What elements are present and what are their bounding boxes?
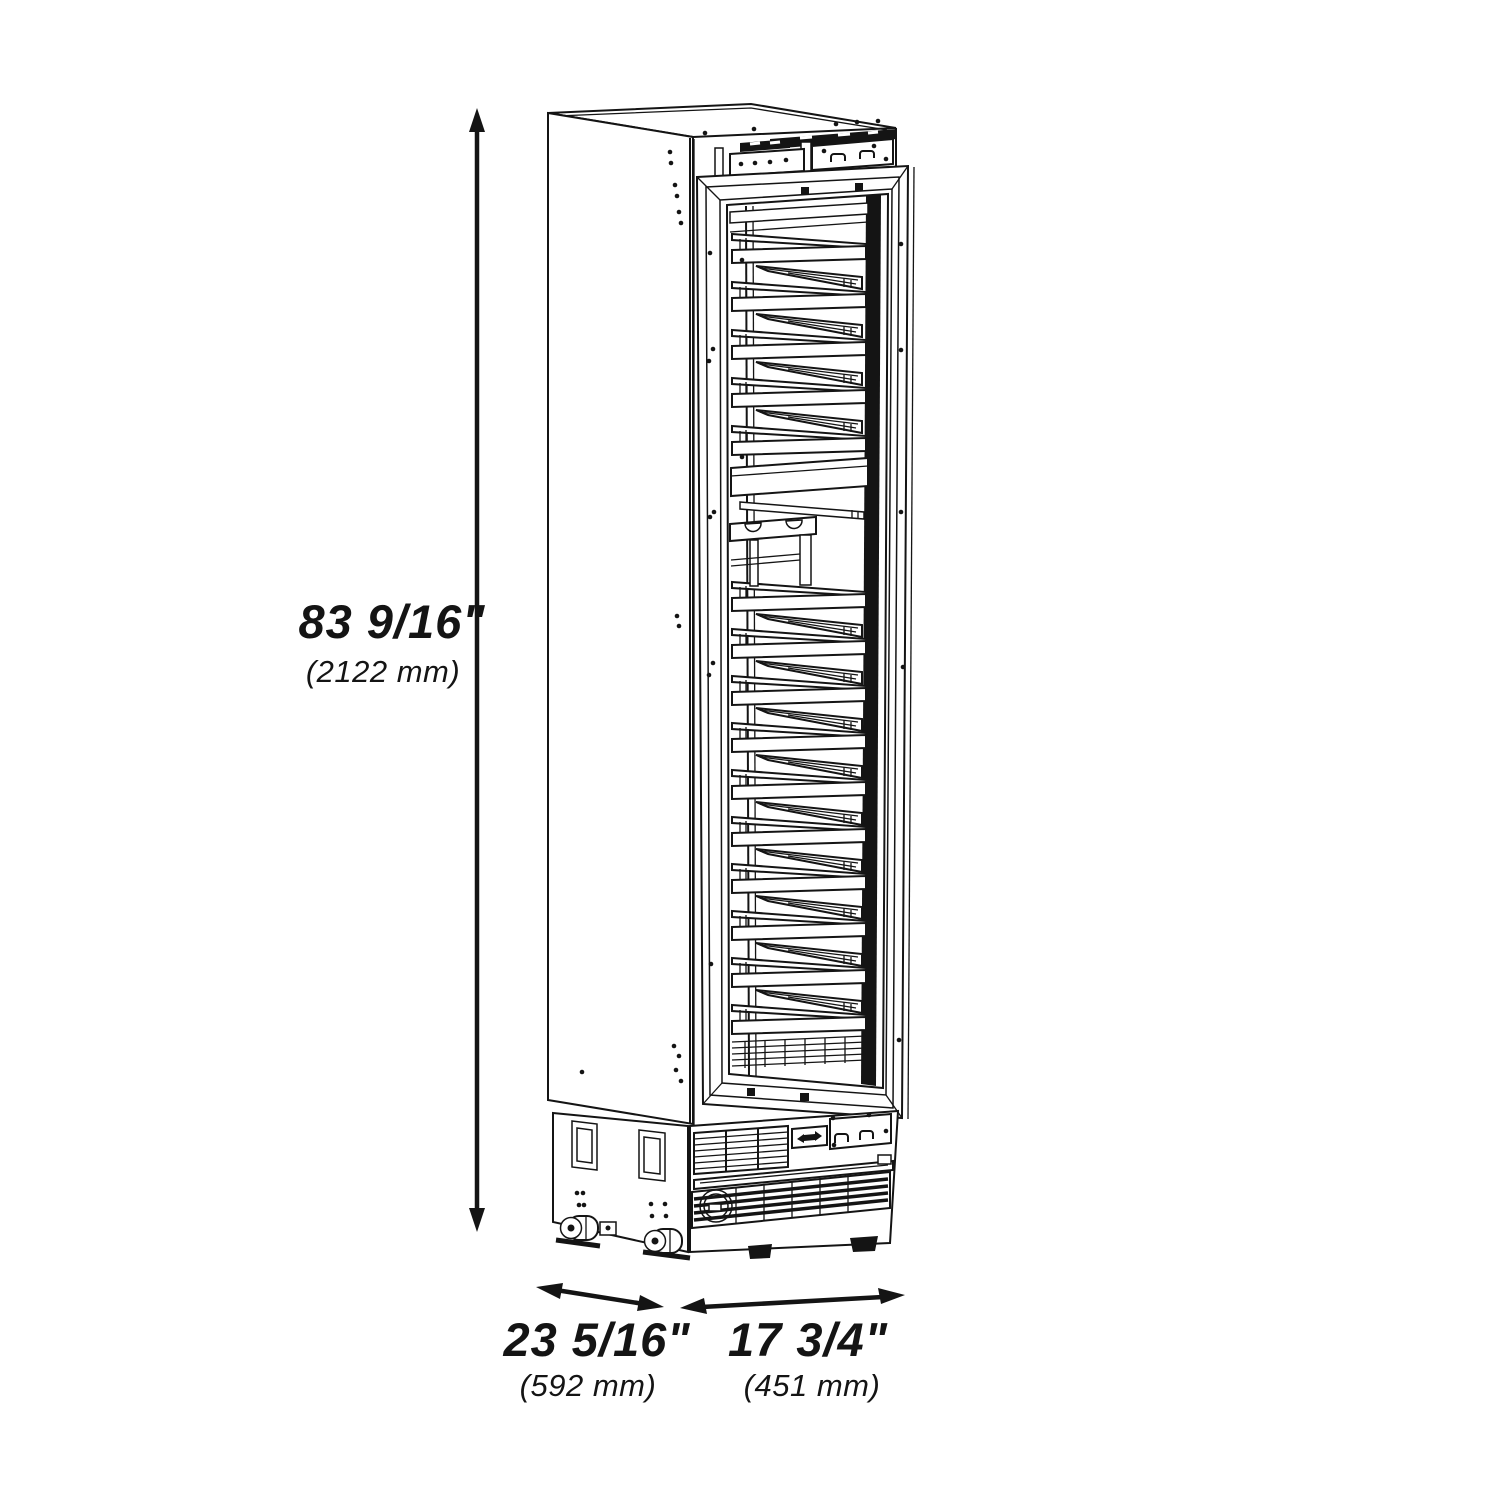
wine-cooler-line-drawing: [0, 0, 1500, 1500]
lower-front-section: [690, 1111, 898, 1259]
width-dimension-arrow: [680, 1288, 905, 1314]
depth-mm-label: (592 mm): [520, 1370, 657, 1401]
depth-inches-label: 23 5/16": [503, 1316, 690, 1363]
width-inches-label: 17 3/4": [728, 1316, 888, 1363]
drain-outlet-icon: [792, 1126, 827, 1148]
leveling-foot-right: [850, 1236, 878, 1252]
depth-dimension-arrow: [536, 1283, 664, 1311]
bottom-hinge-plate: [830, 1114, 891, 1149]
cabinet-side-panel: [548, 113, 693, 1124]
leveling-foot-left: [748, 1244, 772, 1259]
height-dimension-arrow: [469, 108, 485, 1232]
height-inches-label: 83 9/16": [298, 598, 485, 645]
base-left-block: [553, 1113, 690, 1258]
width-mm-label: (451 mm): [744, 1370, 881, 1401]
dimension-diagram: 83 9/16" (2122 mm) 23 5/16" (592 mm) 17 …: [0, 0, 1500, 1500]
hinge-post-left: [715, 148, 723, 176]
upper-vent-grille: [694, 1126, 788, 1174]
height-mm-label: (2122 mm): [306, 656, 460, 687]
